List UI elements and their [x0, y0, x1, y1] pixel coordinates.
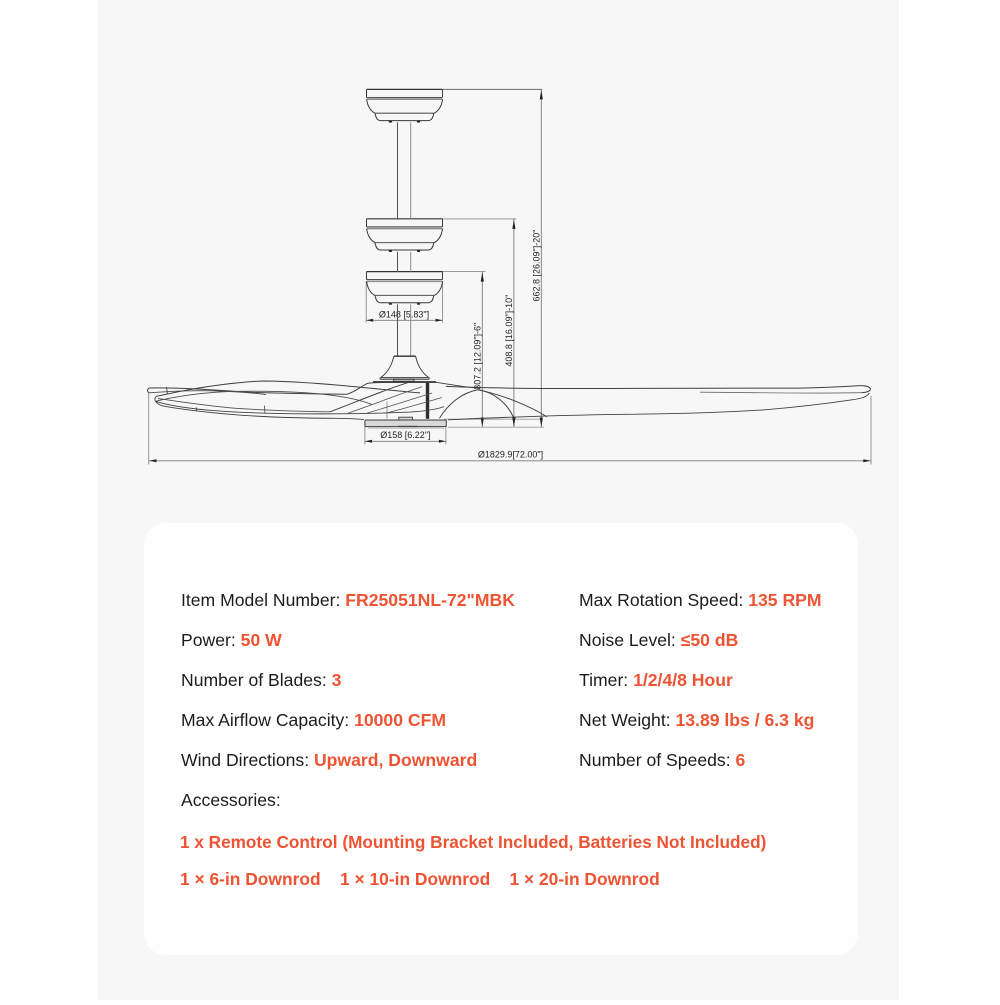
svg-text:Ø158 [6.22"]: Ø158 [6.22"] — [380, 430, 430, 440]
svg-text:Ø148 [5.83"]: Ø148 [5.83"] — [379, 310, 429, 320]
svg-text:408.8 [16.09"]-10": 408.8 [16.09"]-10" — [504, 295, 514, 367]
svg-text:307.2 [12.09"]-6": 307.2 [12.09"]-6" — [472, 323, 482, 390]
svg-text:662.8 [26.09"]-20": 662.8 [26.09"]-20" — [532, 230, 542, 302]
svg-text:Ø1829.9[72.00"]: Ø1829.9[72.00"] — [478, 449, 543, 459]
